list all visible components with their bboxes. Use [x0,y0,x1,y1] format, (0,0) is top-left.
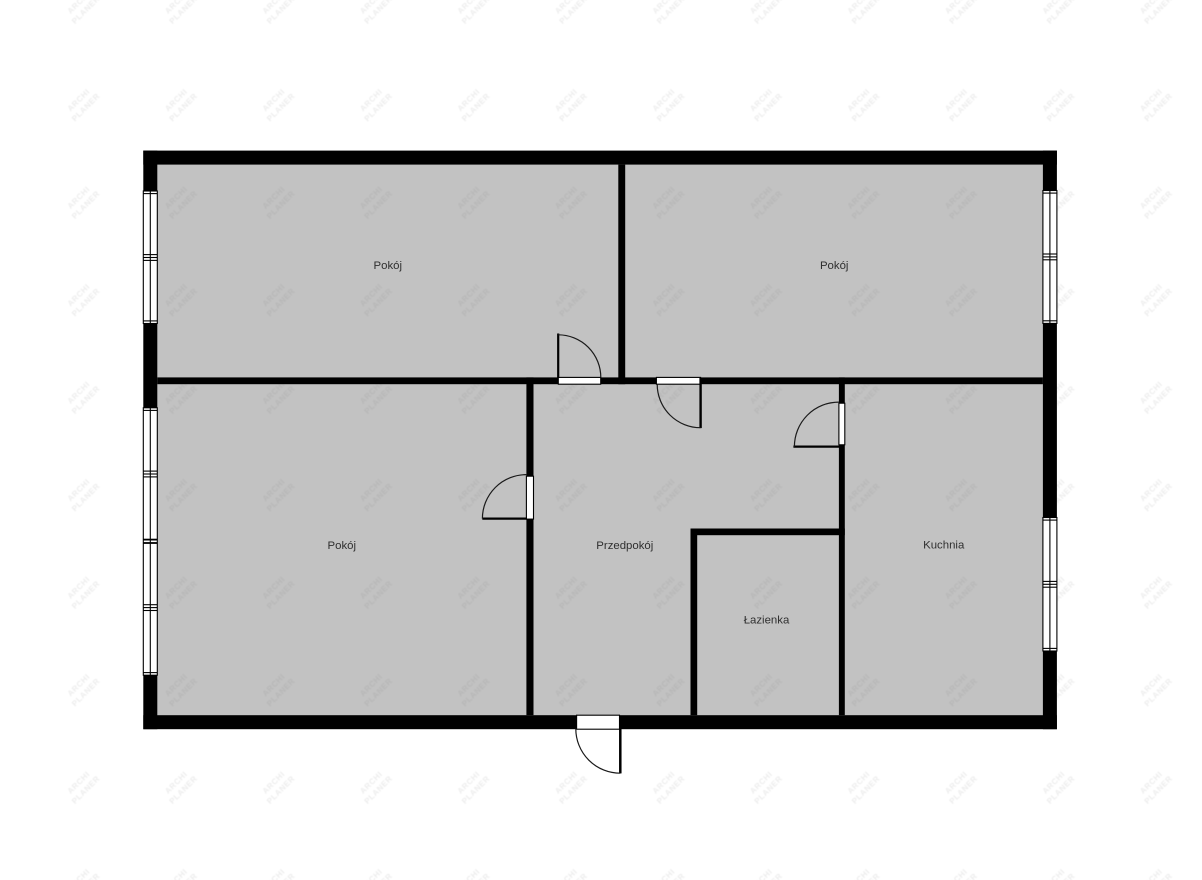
svg-text:Łazienka: Łazienka [744,615,790,627]
svg-text:Przedpokój: Przedpokój [596,540,653,552]
svg-text:Pokój: Pokój [820,260,849,272]
svg-text:Kuchnia: Kuchnia [923,540,965,552]
svg-text:Pokój: Pokój [374,260,403,272]
svg-text:Pokój: Pokój [328,540,357,552]
